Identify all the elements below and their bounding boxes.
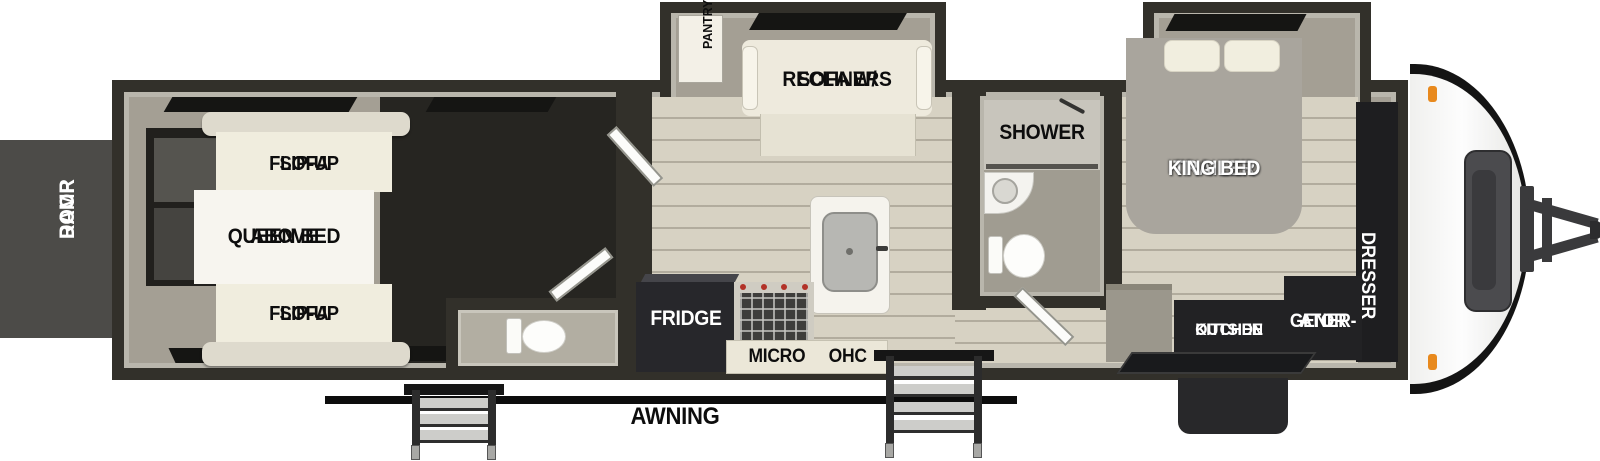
outside-kitchen-tray-icon xyxy=(1116,352,1316,374)
steps-right-rail-a xyxy=(886,356,894,444)
sofa-recliners-label: SOFA W/ RECLINERS xyxy=(759,56,915,104)
micro-label: MICRO xyxy=(748,347,805,367)
steps-right-tread-1 xyxy=(894,366,974,379)
stove-grate-icon xyxy=(740,293,808,343)
steps-left-foot-a xyxy=(411,445,420,460)
shower-label: SHOWER xyxy=(985,120,1099,146)
steps-left-tread-1 xyxy=(420,398,488,411)
marker-light-top-icon xyxy=(1428,86,1437,102)
hitch-arm-upper-icon xyxy=(1524,198,1598,229)
pillow-right-icon xyxy=(1224,40,1280,72)
sofa-window-icon xyxy=(749,13,907,30)
garage-window-top-right-icon xyxy=(426,97,557,112)
floorplan-canvas: AWNING RAMP DOOR FLIP-UP SOFA QUEEN BED … xyxy=(0,0,1600,461)
flip-up-sofa-bottom-armrest xyxy=(202,342,410,366)
pantry-cabinet: PANTRY xyxy=(678,15,723,83)
marker-light-bottom-icon xyxy=(1428,354,1437,370)
half-bath-toilet-icon xyxy=(522,320,566,353)
steps-right-foot-a xyxy=(885,443,894,458)
sink-drain-icon xyxy=(846,248,853,255)
bathroom-sink-icon xyxy=(992,178,1018,204)
steps-left-rail-a xyxy=(412,390,420,446)
bedroom-corner-cabinet xyxy=(1106,284,1172,362)
ramp-door: RAMP DOOR xyxy=(0,140,113,338)
steps-right-foot-b xyxy=(973,443,982,458)
steps-left-tread-2 xyxy=(420,414,488,427)
steps-right-tread-4 xyxy=(894,420,974,433)
half-bath-toilet-tank-icon xyxy=(506,318,522,354)
entry-steps-left xyxy=(404,384,504,460)
outside-kitchen-label: OUTSIDE KITCHEN xyxy=(1178,306,1279,354)
toilet-icon xyxy=(1003,234,1045,278)
kitchen-counter: MICRO OHC xyxy=(726,340,888,374)
fridge-label: FRIDGE xyxy=(640,304,732,334)
shower-glass-icon xyxy=(986,164,1098,169)
pillow-left-icon xyxy=(1164,40,1220,72)
entry-steps-right xyxy=(874,350,994,458)
flip-up-sofa-bottom-label: FLIP-UP SOFA xyxy=(223,290,385,338)
entry-step-box xyxy=(1178,378,1288,434)
garage-window-top-left-icon xyxy=(164,97,358,112)
flip-up-sofa-top-label: FLIP-UP SOFA xyxy=(223,140,385,188)
steps-right-tread-2 xyxy=(894,384,974,397)
steps-right-rail-b xyxy=(974,356,982,444)
steps-left-foot-b xyxy=(487,445,496,460)
bedroom-window-icon xyxy=(1165,14,1306,31)
hitch-arm-lower-icon xyxy=(1524,232,1598,263)
awning-label: AWNING xyxy=(606,402,744,432)
steps-left-tread-3 xyxy=(420,430,488,443)
sofa-armrest-right xyxy=(916,46,932,110)
sink-faucet-icon xyxy=(876,246,888,251)
king-bed-label: TRAILER KING BED xyxy=(1142,142,1286,196)
steps-right-tread-3 xyxy=(894,402,974,415)
stove-knobs-icon xyxy=(740,284,808,290)
toilet-tank-icon xyxy=(988,236,1003,274)
sofa-armrest-left xyxy=(742,46,758,110)
generator-label: GENER- ATOR xyxy=(1287,296,1359,348)
queen-bed-above-label: QUEEN BED ABOVE xyxy=(201,212,367,262)
ohc-label: OHC xyxy=(828,347,866,367)
sofa-recliner-footrests xyxy=(760,114,916,156)
steps-left-rail-b xyxy=(488,390,496,446)
dresser: DRESSER xyxy=(1356,102,1398,362)
propane-cover-inner xyxy=(1472,170,1496,290)
hitch-coupler-icon xyxy=(1590,221,1600,239)
